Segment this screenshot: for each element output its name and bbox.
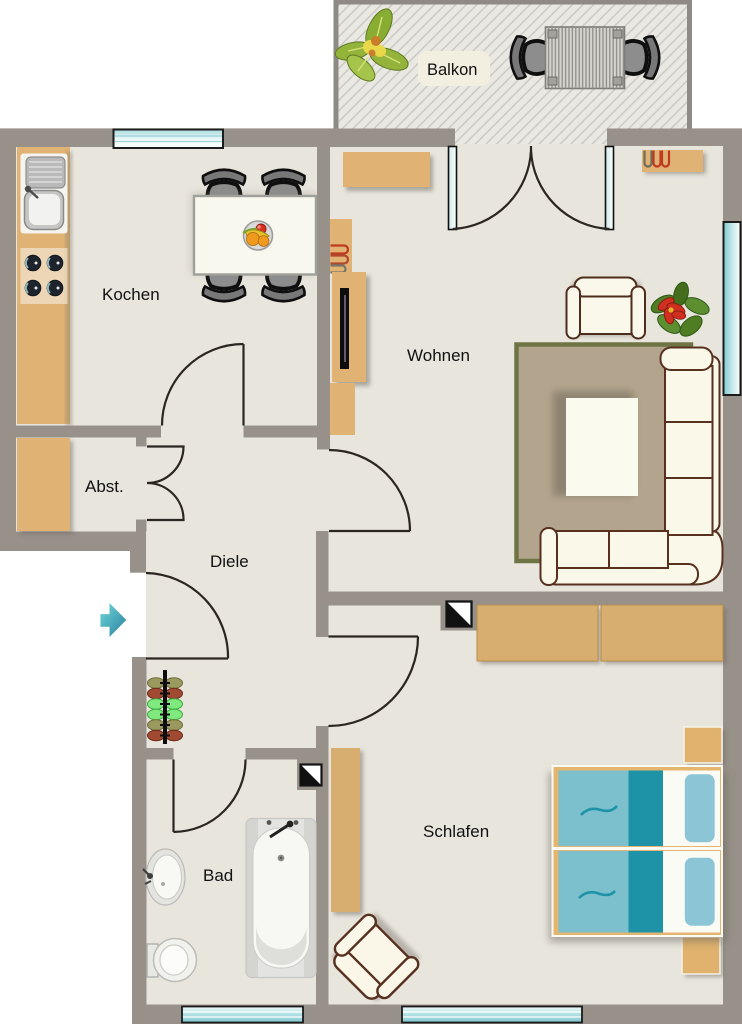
svg-text:Kochen: Kochen xyxy=(102,285,160,304)
svg-text:Abst.: Abst. xyxy=(85,477,124,496)
svg-text:Diele: Diele xyxy=(210,552,249,571)
svg-text:Balkon: Balkon xyxy=(427,61,477,79)
svg-text:Bad: Bad xyxy=(203,866,233,885)
svg-text:Schlafen: Schlafen xyxy=(423,822,489,841)
svg-text:Wohnen: Wohnen xyxy=(407,346,470,365)
